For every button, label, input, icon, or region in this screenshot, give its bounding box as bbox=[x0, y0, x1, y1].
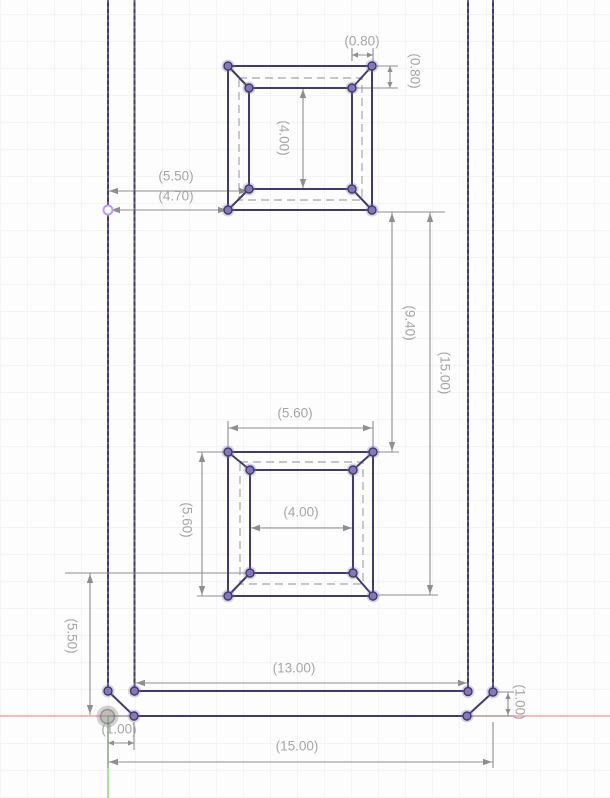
sketch-canvas: (0.80) (0.80) (4.00) (5.50) (4.70) (9.40… bbox=[0, 0, 610, 798]
dim-label-corner-chamfer-height[interactable]: (1.00) bbox=[513, 684, 528, 719]
dim-label-inner-width[interactable]: (13.00) bbox=[273, 661, 316, 676]
dim-label-bottom-offset[interactable]: (5.50) bbox=[65, 618, 80, 653]
highlighted-sketch-point[interactable] bbox=[104, 206, 113, 215]
dim-label-bottom-outer-width[interactable]: (5.60) bbox=[277, 406, 312, 421]
dim-label-pocket-span[interactable]: (15.00) bbox=[438, 352, 453, 395]
dim-label-bottom-outer-height[interactable]: (5.60) bbox=[180, 502, 195, 537]
dim-label-edge-to-outer[interactable]: (4.70) bbox=[158, 189, 193, 204]
dim-label-edge-to-inner[interactable]: (5.50) bbox=[158, 169, 193, 184]
dim-label-top-inner-height[interactable]: (4.00) bbox=[277, 120, 292, 155]
dim-label-top-chamfer-width[interactable]: (0.80) bbox=[344, 34, 379, 49]
sketch-svg: (0.80) (0.80) (4.00) (5.50) (4.70) (9.40… bbox=[0, 0, 610, 798]
dim-label-outer-width[interactable]: (15.00) bbox=[276, 739, 319, 754]
dim-label-corner-chamfer-width[interactable]: (1.00) bbox=[101, 722, 136, 737]
dim-label-top-chamfer-height[interactable]: (0.80) bbox=[408, 53, 423, 88]
grid-lines bbox=[0, 0, 610, 798]
dim-label-pocket-gap[interactable]: (9.40) bbox=[403, 305, 418, 340]
dim-label-bottom-inner-width[interactable]: (4.00) bbox=[283, 505, 318, 520]
